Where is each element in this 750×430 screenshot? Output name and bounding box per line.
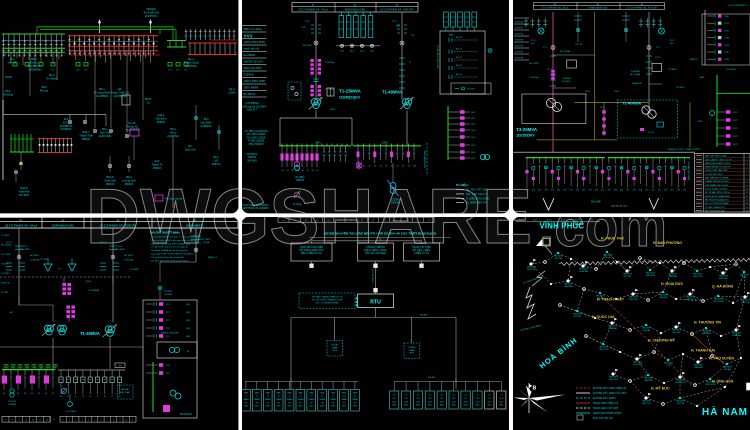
svg-text:1: 1: [746, 156, 747, 158]
svg-text:TU 35KV: TU 35KV: [325, 89, 334, 91]
svg-text:110/35KVA: 110/35KVA: [60, 124, 73, 128]
svg-text:7: 7: [107, 419, 108, 421]
svg-text:MÁY BIẾN ÁP T1 40MVA: MÁY BIẾN ÁP T1 40MVA: [705, 177, 729, 180]
svg-text:35KV B4: 35KV B4: [515, 45, 524, 47]
svg-text:B16.7: B16.7: [82, 130, 90, 134]
svg-text:LỘ 172 PHỦNG XÁ - SƠN TÂY: LỘ 172 PHỦNG XÁ - SƠN TÂY: [380, 9, 414, 12]
svg-text:45: 45: [38, 393, 40, 395]
svg-text:TI 600/5A: TI 600/5A: [124, 259, 134, 262]
svg-text:TRẠM 110KV XÂY MỚI: TRẠM 110KV XÂY MỚI: [593, 407, 619, 410]
svg-text:99: 99: [383, 220, 385, 222]
svg-text:T11: T11: [354, 396, 357, 398]
svg-text:110/35(22)KV: 110/35(22)KV: [339, 96, 361, 100]
svg-text:SƠN TÂY: SƠN TÂY: [677, 402, 686, 405]
svg-text:ĐIỀU KHIỂN TỪ XA: ĐIỀU KHIỂN TỪ XA: [301, 252, 322, 255]
svg-text:ATM: ATM: [700, 76, 705, 79]
svg-text:5: 5: [746, 170, 747, 172]
svg-text:B1-35KVA: B1-35KVA: [244, 92, 256, 96]
svg-text:NGĂN PĐ: NGĂN PĐ: [632, 82, 642, 85]
svg-text:TỦ TỰ DÙNG TD 35KV: TỦ TỰ DÙNG TD 35KV: [705, 188, 728, 191]
svg-text:35KV B1: 35KV B1: [515, 27, 524, 29]
svg-text:T2: T2: [256, 396, 258, 398]
svg-text:PHỐI: PHỐI: [409, 352, 414, 355]
svg-text:SƠ ĐỒ NGUYÊN LÝ: SƠ ĐỒ NGUYÊN LÝ: [728, 4, 749, 7]
svg-text:46: 46: [45, 393, 47, 395]
svg-text:250 + CONVENTIONAL: 250 + CONVENTIONAL: [315, 302, 339, 305]
svg-text:VÂN ĐÌNH: VÂN ĐÌNH: [694, 366, 703, 369]
svg-text:ĐỒNG MÔ: ĐỒNG MÔ: [719, 277, 728, 280]
svg-text:TD-35KV: TD-35KV: [295, 177, 305, 179]
svg-text:H. CHƯƠNG MỸ: H. CHƯƠNG MỸ: [648, 338, 676, 343]
svg-text:Thành Công: Thành Công: [184, 61, 199, 65]
svg-text:PHÂN: PHÂN: [409, 349, 415, 352]
svg-text:T3: T3: [25, 419, 27, 421]
svg-text:171-1: 171-1: [547, 69, 553, 71]
svg-text:25MVA: 25MVA: [106, 182, 115, 186]
svg-text:T10: T10: [343, 396, 346, 398]
svg-text:TI 600/5A: TI 600/5A: [529, 76, 539, 79]
svg-text:T3: T3: [267, 396, 269, 398]
svg-text:477: 477: [633, 190, 636, 192]
svg-text:7: 7: [746, 178, 747, 180]
svg-text:TỦ ĐẦU: TỦ ĐẦU: [408, 346, 416, 349]
svg-text:CỔNG RS-232: CỔNG RS-232: [372, 268, 375, 283]
svg-text:LẮP ĐẶT: LẮP ĐẶT: [121, 388, 130, 391]
svg-text:71: 71: [67, 396, 69, 398]
svg-text:41: 41: [363, 166, 365, 168]
svg-text:XUÂN MAI: XUÂN MAI: [608, 327, 617, 330]
svg-text:MC 35KV: MC 35KV: [303, 45, 313, 47]
svg-text:H. PHÚC THỌ: H. PHÚC THỌ: [601, 236, 624, 241]
svg-text:180KVA: 180KVA: [8, 403, 16, 406]
svg-text:MBA TD: MBA TD: [690, 58, 698, 61]
svg-text:6: 6: [100, 419, 101, 421]
svg-text:TU 35KV: TU 35KV: [40, 259, 49, 261]
svg-text:470: 470: [651, 190, 654, 192]
svg-text:T1-25MVA: T1-25MVA: [339, 89, 362, 94]
svg-text:THANH: THANH: [254, 398, 261, 401]
svg-text:KHU VỰC DỰ ÁN: KHU VỰC DỰ ÁN: [593, 417, 613, 420]
svg-text:35KV: 35KV: [86, 281, 92, 283]
svg-text:ĐƯỜNG DÂY 110KV HIỆN CÓ: ĐƯỜNG DÂY 110KV HIỆN CÓ: [593, 387, 626, 390]
svg-text:NGĂN MBA T1: NGĂN MBA T1: [186, 224, 204, 228]
svg-text:DCL: DAO CÁCH LY: DCL: DAO CÁCH LY: [466, 193, 489, 196]
svg-text:LỘ 4: LỘ 4: [428, 397, 432, 400]
svg-text:LỘ 171 PHỦNG XÁ - XA LA: LỘ 171 PHỦNG XÁ - XA LA: [298, 9, 328, 12]
svg-text:172-1: 172-1: [655, 57, 661, 59]
svg-text:10: 10: [746, 189, 748, 191]
svg-text:HOÀ LẠC: HOÀ LẠC: [643, 329, 652, 332]
svg-text:40: 40: [3, 393, 5, 395]
svg-text:A2: A2: [597, 3, 599, 6]
svg-text:35KV: 35KV: [186, 336, 191, 338]
svg-text:410: 410: [413, 166, 416, 168]
svg-text:B10.5: B10.5: [20, 186, 28, 190]
svg-text:35KV: 35KV: [186, 304, 191, 306]
svg-text:171-7: 171-7: [22, 246, 28, 248]
svg-text:DCL-7: DCL-7: [6, 242, 13, 244]
svg-text:MC 35KV: MC 35KV: [30, 255, 40, 257]
svg-text:MC-44: MC-44: [456, 74, 462, 76]
svg-text:43: 43: [24, 393, 26, 395]
svg-text:T1: T1: [245, 396, 247, 398]
svg-text:Thạch Tổ: Thạch Tổ: [151, 163, 163, 167]
svg-text:Xuân Mai: Xuân Mai: [104, 179, 116, 183]
svg-text:THƯỜNG TÍN: THƯỜNG TÍN: [675, 381, 687, 384]
svg-text:DC: DC: [76, 70, 80, 72]
svg-text:B3.2: B3.2: [170, 127, 176, 131]
svg-text:15: 15: [746, 207, 748, 209]
svg-text:T4: T4: [32, 419, 34, 421]
svg-text:- Tủ điều khiển bảo vệ cho các: - Tủ điều khiển bảo vệ cho các ngăn lộ: [150, 246, 188, 249]
svg-text:BIẾN DÒNG ĐIỆN TI 35KV: BIẾN DÒNG ĐIỆN TI 35KV: [705, 162, 731, 165]
svg-text:T3-25MVA: T3-25MVA: [516, 127, 538, 132]
svg-text:476: 476: [626, 190, 629, 192]
svg-text:171-7: 171-7: [305, 21, 311, 23]
svg-text:XUÂN MAI: XUÂN MAI: [732, 334, 741, 337]
svg-text:470: 470: [588, 190, 591, 192]
svg-text:MÁY PHÁT: MÁY PHÁT: [120, 391, 131, 394]
svg-text:110KV-35KV 2MW: 110KV-35KV 2MW: [244, 79, 266, 83]
svg-text:THANH: THANH: [308, 398, 315, 401]
svg-text:THANH: THANH: [265, 398, 272, 401]
svg-text:474: 474: [551, 190, 554, 192]
svg-text:THANH: THANH: [319, 398, 326, 401]
svg-text:B: B: [533, 386, 537, 392]
svg-text:4: 4: [88, 419, 89, 421]
svg-text:A1: A1: [554, 3, 556, 6]
svg-text:35KV B3: 35KV B3: [515, 39, 524, 41]
svg-text:1: 1: [69, 419, 70, 421]
svg-text:GHI CHÚ: MBA 110/35/22KV: GHI CHÚ: MBA 110/35/22KV: [239, 204, 269, 207]
svg-text:Phúng Xá: Phúng Xá: [126, 125, 138, 129]
svg-text:TU 35KV: TU 35KV: [562, 81, 571, 83]
svg-text:BL.1: BL.1: [188, 57, 194, 61]
svg-text:172-7: 172-7: [669, 40, 675, 42]
svg-text:44: 44: [380, 166, 382, 168]
svg-text:35KV: 35KV: [330, 109, 336, 111]
svg-text:Sơn Tây: Sơn Tây: [100, 131, 111, 135]
svg-text:THANH: THANH: [297, 398, 304, 401]
svg-text:2: 2: [75, 419, 76, 421]
svg-text:2x63MVA: 2x63MVA: [60, 127, 71, 131]
svg-text:PHÚC THỌ: PHÚC THỌ: [741, 301, 750, 304]
svg-text:BA CHẼ 02: BA CHẼ 02: [180, 413, 192, 416]
svg-text:B10.9: B10.9: [106, 175, 114, 179]
svg-text:2x25MVA: 2x25MVA: [185, 64, 197, 68]
svg-text:91: 91: [294, 220, 296, 222]
svg-text:LỘ 8: LỘ 8: [476, 397, 480, 400]
svg-text:BA CHE: BA CHE: [591, 200, 601, 204]
svg-text:100KVA: 100KVA: [391, 202, 400, 205]
svg-text:13: 13: [746, 200, 748, 202]
svg-text:H. THẠCH THẤT: H. THẠCH THẤT: [597, 298, 625, 302]
svg-text:96: 96: [350, 220, 352, 222]
svg-text:Quốc Oai: Quốc Oai: [185, 148, 196, 151]
svg-text:110KV-35KV 2MW: 110KV-35KV 2MW: [244, 40, 266, 44]
svg-text:76: 76: [104, 396, 106, 398]
svg-text:T6: T6: [299, 396, 301, 398]
svg-text:MIẾU MÔN: MIẾU MÔN: [646, 274, 656, 277]
svg-text:Lâm Điền: Lâm Điền: [200, 120, 212, 124]
svg-text:CS 35KV: CS 35KV: [1, 273, 10, 275]
svg-text:110 MVA: 110 MVA: [19, 193, 30, 197]
svg-text:LỘ 9: LỘ 9: [488, 397, 492, 400]
svg-text:TRẠM PHỦNG XÁ 2x40MVA: TRẠM PHỦNG XÁ 2x40MVA: [239, 207, 269, 210]
svg-text:CHÚC SƠN: CHÚC SƠN: [693, 275, 703, 278]
svg-text:25MVA: 25MVA: [82, 137, 91, 141]
svg-text:4: 4: [746, 167, 747, 169]
svg-text:DCL 35KV: DCL 35KV: [115, 249, 125, 251]
svg-text:TỰ DÙNG: TỰ DÙNG: [726, 68, 736, 71]
svg-text:B3.4: B3.4: [31, 57, 37, 61]
svg-text:- Cáp ngầm 24KV CU/XLPE/PVC 3x: - Cáp ngầm 24KV CU/XLPE/PVC 3x240mm2: [150, 253, 195, 256]
svg-text:75: 75: [96, 396, 98, 398]
svg-text:35KV B0: 35KV B0: [515, 21, 524, 23]
svg-text:MC 35KV: MC 35KV: [202, 239, 212, 241]
svg-text:XUÂN MAI: XUÂN MAI: [579, 270, 588, 273]
svg-text:TRẠM THU THẬP: TRẠM THU THẬP: [412, 246, 431, 249]
svg-text:DC: DC: [168, 70, 172, 72]
svg-text:MBA: MBA: [449, 34, 454, 37]
svg-text:MC-42: MC-42: [456, 57, 462, 59]
svg-text:40+63MVA: 40+63MVA: [95, 94, 108, 98]
svg-text:35/0.4KV: 35/0.4KV: [247, 159, 257, 162]
svg-text:PHÙ CÁT: PHÙ CÁT: [673, 331, 682, 334]
svg-text:T5: T5: [289, 396, 291, 398]
svg-text:HỆ THỐNG ĐIỀU HÒA: HỆ THỐNG ĐIỀU HÒA: [300, 249, 324, 252]
svg-text:DCL 35KV: DCL 35KV: [1, 254, 11, 256]
svg-text:TD 35: TD 35: [648, 132, 655, 134]
svg-text:MC 1250A: MC 1250A: [560, 50, 570, 53]
svg-text:SƠ ĐỒ NGUYÊN TẮC ĐẤU NỐI RTU V: SƠ ĐỒ NGUYÊN TẮC ĐẤU NỐI RTU VỚI SCADA V…: [324, 231, 436, 236]
svg-text:22KV: 22KV: [614, 91, 620, 93]
svg-text:110/35/23KV: 110/35/23KV: [516, 134, 535, 138]
svg-text:RS-485: RS-485: [420, 315, 428, 317]
svg-text:110/35KVA: 110/35KVA: [27, 64, 40, 68]
svg-text:KÝ HIỆU:: KÝ HIỆU:: [456, 182, 468, 187]
svg-text:DC: DC: [84, 70, 88, 72]
svg-text:H. ỨNG HOÀ: H. ỨNG HOÀ: [712, 379, 734, 384]
svg-text:LỘ 7: LỘ 7: [464, 397, 468, 400]
svg-text:9: 9: [746, 185, 747, 187]
svg-text:479: 479: [645, 190, 648, 192]
svg-text:471: 471: [658, 190, 661, 192]
svg-text:93: 93: [316, 220, 318, 222]
svg-text:LỘ 172 PHỦNG XÁ - SƠN TÂY: LỘ 172 PHỦNG XÁ - SƠN TÂY: [627, 6, 658, 9]
svg-text:Tía: Tía: [146, 101, 150, 104]
svg-text:35KV: 35KV: [186, 312, 191, 314]
svg-text:PHÒNG THIẾT BỊ: PHÒNG THIẾT BỊ: [366, 246, 385, 249]
svg-text:ĐỒNG HỒ ĐO ĐẾM ĐIỆN: ĐỒNG HỒ ĐO ĐẾM ĐIỆN: [705, 195, 730, 198]
svg-text:47: 47: [52, 393, 54, 395]
svg-text:RS-485: RS-485: [428, 377, 436, 379]
svg-text:DC: DC: [176, 70, 180, 72]
svg-text:T1-40MVA: T1-40MVA: [80, 331, 100, 336]
svg-text:T1: T1: [11, 419, 13, 421]
svg-text:LỘ 10: LỘ 10: [499, 397, 504, 400]
svg-text:PHÚ XUYÊN: PHÚ XUYÊN: [713, 300, 724, 303]
svg-text:LỘ 5: LỘ 5: [440, 397, 444, 400]
svg-text:LỘ 1: LỘ 1: [392, 397, 396, 400]
svg-text:5: 5: [94, 419, 95, 421]
svg-text:100KVA: 100KVA: [164, 293, 172, 296]
svg-text:25MVA: 25MVA: [125, 182, 134, 186]
svg-text:43: 43: [374, 166, 376, 168]
svg-text:11: 11: [746, 192, 748, 194]
svg-text:ĐƯỜNG DÂY 110KV XÂY MỚI: ĐƯỜNG DÂY 110KV XÂY MỚI: [593, 392, 627, 395]
svg-text:MC 35KV: MC 35KV: [124, 255, 134, 257]
svg-text:6: 6: [746, 174, 747, 176]
svg-text:171-7: 171-7: [530, 40, 536, 42]
svg-text:HÀ NAM: HÀ NAM: [702, 405, 748, 418]
svg-text:TỦ ĐẦU: TỦ ĐẦU: [331, 344, 339, 347]
svg-text:H. QUỐC OAI: H. QUỐC OAI: [592, 314, 614, 319]
svg-text:110/35KVA: 110/35KVA: [113, 94, 126, 98]
svg-text:VVV: VVV: [244, 33, 254, 38]
svg-text:CÁP NGẦM 24KV 3x240: CÁP NGẦM 24KV 3x240: [705, 184, 729, 187]
svg-text:92: 92: [305, 220, 307, 222]
svg-text:74: 74: [89, 396, 91, 398]
svg-text:B6.1: B6.1: [99, 87, 105, 91]
svg-text:TUC 35: TUC 35: [575, 44, 583, 46]
svg-text:1250A: 1250A: [203, 241, 210, 244]
svg-text:11: 11: [132, 419, 134, 421]
svg-text:PHÚC THỌ: PHÚC THỌ: [642, 402, 652, 405]
svg-text:8: 8: [746, 181, 747, 183]
svg-text:MC-41: MC-41: [456, 48, 462, 50]
svg-text:XUÂN MAI: XUÂN MAI: [668, 275, 677, 278]
svg-text:TỰ DÙNG: TỰ DÙNG: [66, 410, 76, 413]
svg-text:22KV PHÂN ĐOẠN: 22KV PHÂN ĐOẠN: [424, 150, 427, 168]
svg-text:46: 46: [391, 166, 393, 168]
svg-text:35KV B2: 35KV B2: [515, 33, 524, 35]
svg-text:T6: T6: [46, 419, 48, 421]
svg-text:Lương Sơn: Lương Sơn: [122, 179, 136, 183]
svg-text:Thạch Thất 110: Thạch Thất 110: [111, 91, 130, 95]
svg-text:TI 600/5A: TI 600/5A: [325, 61, 335, 64]
svg-text:T1-40MVA: T1-40MVA: [622, 101, 641, 106]
svg-text:Hà Lý: Hà Lý: [169, 131, 177, 135]
svg-text:B9.2: B9.2: [126, 175, 132, 179]
svg-text:DCL: DCL: [302, 27, 307, 29]
svg-text:2x40MVA: 2x40MVA: [200, 124, 211, 128]
svg-text:110/35: 110/35: [5, 77, 13, 79]
svg-text:MC-40: MC-40: [456, 37, 462, 39]
svg-text:CS 35KV: CS 35KV: [130, 269, 139, 271]
svg-text:TỦ HỢP BỘ 22KV: TỦ HỢP BỘ 22KV: [705, 173, 723, 176]
svg-text:H. HOÀI ĐỨC: H. HOÀI ĐỨC: [661, 281, 684, 286]
svg-text:THƯỜNG TÍN: THƯỜNG TÍN: [685, 298, 697, 301]
svg-text:T8: T8: [321, 396, 323, 398]
svg-text:472: 472: [601, 190, 604, 192]
svg-text:471: 471: [532, 190, 535, 192]
svg-text:H. PHÚ XUYÊN: H. PHÚ XUYÊN: [709, 356, 734, 361]
svg-text:472: 472: [538, 190, 541, 192]
svg-text:E1963-E: E1963-E: [244, 72, 254, 76]
svg-text:DC: DC: [184, 70, 188, 72]
svg-text:70: 70: [60, 396, 62, 398]
svg-text:VÂN ĐÌNH: VÂN ĐÌNH: [564, 285, 573, 288]
svg-text:BIẾN ĐIỆN ÁP TU 35KV-3P: BIẾN ĐIỆN ÁP TU 35KV-3P: [705, 166, 731, 169]
svg-text:0: 0: [63, 419, 64, 421]
svg-text:TD 35KV: TD 35KV: [390, 200, 400, 202]
svg-text:TU 35KV: TU 35KV: [668, 69, 677, 71]
svg-text:DCL-7: DCL-7: [100, 242, 107, 244]
svg-text:NGỌC HỒI: NGỌC HỒI: [609, 378, 619, 381]
svg-text:97: 97: [361, 220, 363, 222]
svg-text:THANH: THANH: [341, 398, 348, 401]
svg-text:NGĂN MẠCH CẦU: NGĂN MẠCH CẦU: [589, 6, 608, 9]
svg-text:77: 77: [111, 396, 113, 398]
svg-text:TRẠM 110KV HIỆN CÓ: TRẠM 110KV HIỆN CÓ: [593, 402, 618, 405]
svg-text:475: 475: [557, 190, 560, 192]
svg-text:KHIỂN TỪ XA: KHIỂN TỪ XA: [414, 252, 429, 255]
svg-text:14: 14: [746, 203, 748, 205]
svg-text:MÁY CẮT 35KV-1250A: MÁY CẮT 35KV-1250A: [705, 155, 727, 158]
svg-text:8: 8: [113, 419, 114, 421]
svg-text:NGĂN MẠCH CẦU: NGĂN MẠCH CẦU: [345, 9, 366, 12]
svg-text:- Hệ thống SCADA kết nối về tr: - Hệ thống SCADA kết nối về trung tâm: [150, 249, 188, 252]
svg-text:35KV PĐ: 35KV PĐ: [1, 283, 10, 285]
svg-text:35KV B6: 35KV B6: [515, 57, 524, 59]
svg-text:mạch cầu nối: mạch cầu nối: [244, 46, 260, 50]
svg-text:TỦ SẠC CHỈNH LƯU: TỦ SẠC CHỈNH LƯU: [705, 206, 725, 209]
svg-text:110/35 KV: 110/35 KV: [145, 14, 158, 18]
svg-text:475: 475: [620, 190, 623, 192]
svg-text:473: 473: [607, 190, 610, 192]
svg-text:Thạch Thất: Thạch Thất: [79, 134, 93, 138]
svg-text:Tự dùng: Tự dùng: [293, 204, 302, 206]
svg-text:25MVA: 25MVA: [157, 120, 166, 124]
svg-text:T9: T9: [332, 396, 334, 398]
svg-text:22KV: 22KV: [698, 121, 704, 123]
svg-text:T0: T0: [4, 419, 6, 421]
svg-text:S/L T/S POINT, TRANSDUCER: S/L T/S POINT, TRANSDUCER: [312, 299, 343, 302]
svg-text:T7: T7: [310, 396, 312, 398]
svg-text:MIẾU MÔN: MIẾU MÔN: [702, 332, 712, 335]
svg-text:VĂN ĐIỂN: VĂN ĐIỂN: [644, 379, 653, 382]
svg-text:3: 3: [82, 419, 83, 421]
svg-text:95: 95: [339, 220, 341, 222]
svg-text:SƠN TÂY: SƠN TÂY: [574, 315, 583, 318]
svg-text:- Toàn bộ thiết bị 35KV đặt tr: - Toàn bộ thiết bị 35KV đặt trong nhà, c…: [150, 239, 196, 242]
svg-text:TI 600/5A: TI 600/5A: [30, 259, 40, 262]
svg-text:Hà Đông: Hà Đông: [3, 93, 13, 96]
svg-text:H. ĐAN PHƯỢNG: H. ĐAN PHƯỢNG: [653, 241, 682, 245]
svg-text:3: 3: [746, 163, 747, 165]
svg-text:45: 45: [385, 166, 387, 168]
svg-text:HỆ THỐNG NỐI ĐẤT: HỆ THỐNG NỐI ĐẤT: [705, 210, 726, 213]
svg-text:G: G: [187, 350, 189, 353]
svg-text:470: 470: [525, 190, 528, 192]
svg-text:Q. HÀ ĐÔNG: Q. HÀ ĐÔNG: [712, 284, 733, 289]
svg-text:35KV NHÁNH: 35KV NHÁNH: [248, 143, 263, 146]
svg-text:Mỗ Lao: Mỗ Lao: [40, 89, 49, 92]
svg-text:42: 42: [17, 393, 19, 395]
svg-text:NGỌC HỒI: NGỌC HỒI: [629, 298, 639, 301]
svg-text:PHÙ CÁT: PHÙ CÁT: [624, 275, 633, 278]
svg-text:35KV: 35KV: [186, 320, 191, 322]
svg-text:72: 72: [75, 396, 77, 398]
svg-text:THANH: THANH: [243, 398, 250, 401]
svg-text:9: 9: [119, 419, 120, 421]
svg-text:BẢO VỆ + ĐO ĐẾM: BẢO VỆ + ĐO ĐẾM: [365, 252, 385, 255]
svg-text:478: 478: [576, 190, 579, 192]
svg-text:HOÀ LẠC: HOÀ LẠC: [604, 256, 613, 259]
svg-text:THANH: THANH: [287, 398, 294, 401]
svg-text:TU 35KV: TU 35KV: [1, 235, 10, 237]
